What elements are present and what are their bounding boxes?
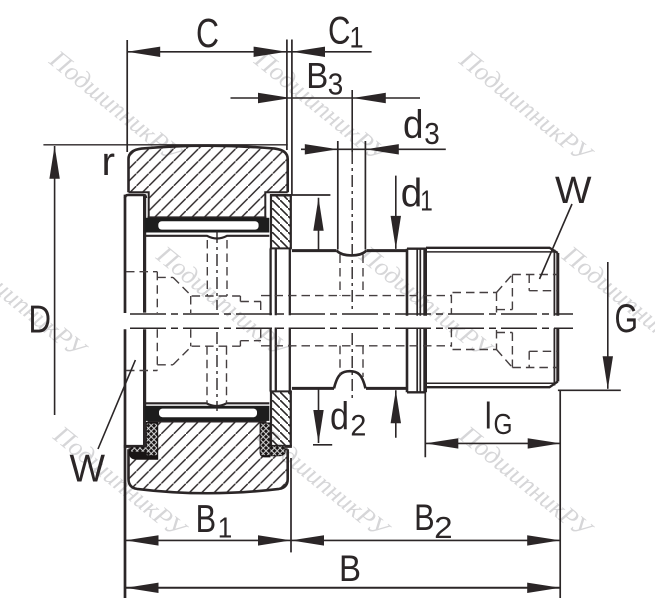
svg-text:1: 1 <box>420 186 433 218</box>
svg-text:C: C <box>328 9 351 52</box>
svg-text:3: 3 <box>328 67 344 102</box>
svg-text:r: r <box>102 140 116 184</box>
svg-text:B: B <box>339 547 361 589</box>
svg-text:G: G <box>494 409 513 441</box>
svg-text:B: B <box>196 498 217 541</box>
svg-text:1: 1 <box>350 22 364 55</box>
svg-text:C: C <box>196 10 219 56</box>
svg-text:2: 2 <box>434 511 453 545</box>
svg-text:l: l <box>485 395 492 436</box>
svg-text:d: d <box>401 172 423 216</box>
svg-text:W: W <box>555 170 592 212</box>
svg-text:D: D <box>29 299 52 342</box>
svg-text:B: B <box>306 55 328 96</box>
svg-text:2: 2 <box>350 409 366 442</box>
svg-text:d: d <box>330 395 349 438</box>
svg-text:B: B <box>414 497 435 538</box>
svg-text:G: G <box>615 297 639 341</box>
svg-text:3: 3 <box>424 117 440 151</box>
svg-text:d: d <box>403 103 424 147</box>
svg-text:1: 1 <box>218 513 233 545</box>
svg-text:W: W <box>70 447 106 490</box>
